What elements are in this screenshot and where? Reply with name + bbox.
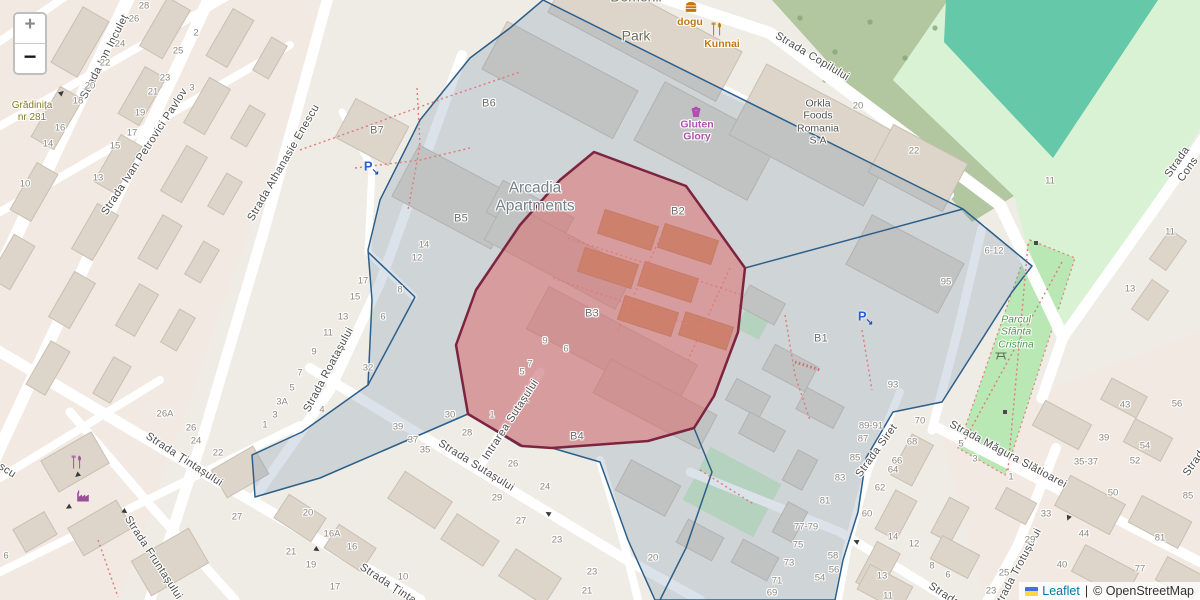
zoom-in-button[interactable]: +: [15, 14, 45, 44]
attribution-bar: Leaflet | © OpenStreetMap: [1019, 582, 1200, 600]
zoom-out-button[interactable]: −: [15, 44, 45, 73]
zoom-control: + −: [13, 12, 47, 75]
ukraine-flag-icon: [1025, 587, 1038, 596]
osm-attribution-link[interactable]: © OpenStreetMap: [1093, 584, 1194, 598]
leaflet-attribution-link[interactable]: Leaflet: [1042, 584, 1080, 598]
map-tiles: [0, 0, 1200, 600]
attribution-separator: |: [1085, 584, 1088, 598]
map-canvas[interactable]: Strada Ion InculețStrada Ivan Petrovici …: [0, 0, 1200, 600]
